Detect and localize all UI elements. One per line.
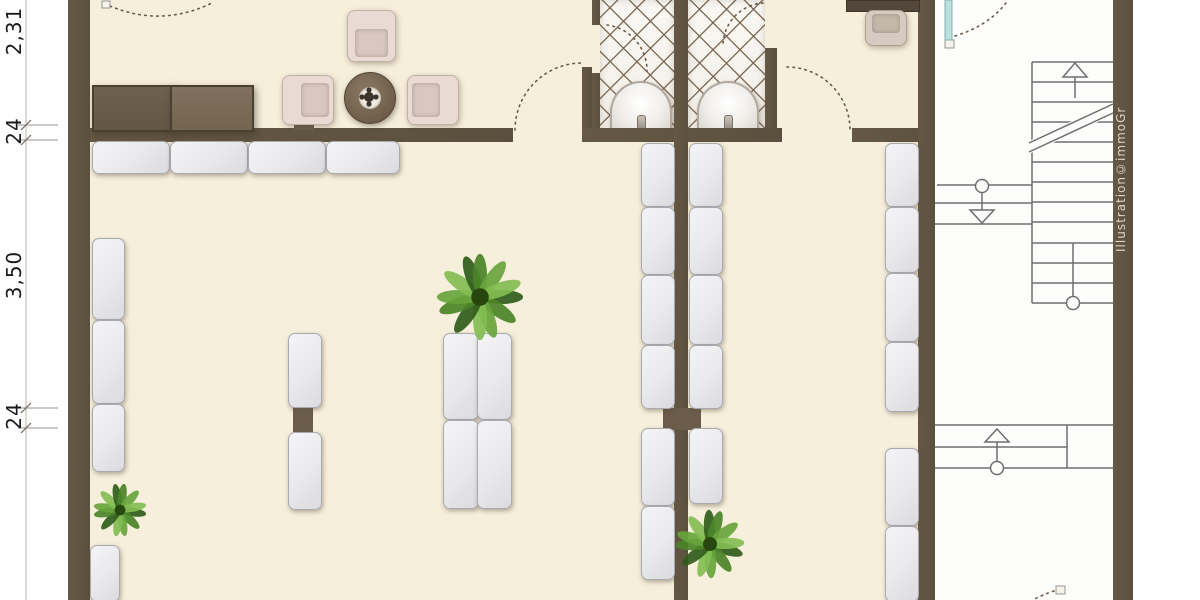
- sideboard-cabinet-1: [170, 85, 254, 132]
- bench-cushion-21: [689, 207, 723, 275]
- bench-cushion-6: [92, 404, 125, 472]
- bench-cushion-2: [248, 141, 326, 174]
- bench-cushion-17: [641, 345, 675, 409]
- bench-cushion-11: [477, 333, 512, 420]
- dimension-label-4: 24: [2, 381, 26, 451]
- floor-plan: 2,31 24 3,50 24 Illustration©immoGr: [0, 0, 1200, 600]
- bench-cushion-4: [92, 238, 125, 320]
- bench-cushion-3: [326, 141, 400, 174]
- bench-cushion-18: [641, 428, 675, 506]
- dimension-label-3: 3,50: [2, 240, 26, 310]
- armchair-2: [407, 75, 459, 125]
- bench-cushion-28: [885, 342, 919, 412]
- bench-cushion-14: [641, 143, 675, 207]
- wall-bath-right: [765, 48, 777, 128]
- wall-bath-left-upper: [592, 0, 600, 25]
- bench-cushion-19: [641, 506, 675, 580]
- sink-0: [610, 81, 672, 135]
- bench-cushion-25: [885, 143, 919, 207]
- armchair-1: [282, 75, 334, 125]
- bench-cushion-20: [689, 143, 723, 207]
- bench-cushion-1: [170, 141, 248, 174]
- bench-cushion-10: [443, 333, 479, 420]
- bench-cushion-12: [443, 420, 479, 509]
- bench-cushion-15: [641, 207, 675, 275]
- illustration-credit: Illustration©immoGr: [1114, 0, 1128, 252]
- bench-cushion-9: [288, 432, 322, 510]
- armchair-seat: [355, 29, 389, 57]
- bench-cushion-0: [92, 141, 170, 174]
- bench-cushion-13: [477, 420, 512, 509]
- wall-exterior-left: [68, 0, 90, 600]
- bench-cushion-30: [885, 526, 919, 600]
- bench-cushion-23: [689, 345, 723, 409]
- coffee-table: [344, 72, 396, 124]
- bench-cushion-22: [689, 275, 723, 345]
- armchair-3: [865, 10, 907, 46]
- armchair-seat: [412, 83, 440, 118]
- bench-cushion-16: [641, 275, 675, 345]
- bench-cushion-8: [288, 333, 322, 408]
- bench-cushion-5: [92, 320, 125, 404]
- bench-cushion-29: [885, 448, 919, 526]
- bench-cushion-26: [885, 207, 919, 273]
- bench-connector-2: [663, 408, 701, 430]
- dimension-label-2: 24: [2, 96, 26, 166]
- bench-cushion-7: [90, 545, 120, 600]
- bench-connector-1: [293, 406, 313, 432]
- armchair-seat: [301, 83, 329, 118]
- armchair-0: [347, 10, 396, 62]
- wall-center-spine: [674, 0, 688, 600]
- floor-stair-hall: [935, 0, 1113, 600]
- wall-stairhall-left: [918, 0, 935, 600]
- bench-cushion-27: [885, 273, 919, 342]
- bench-cushion-24: [689, 428, 723, 504]
- wall-bath-left-lower: [592, 73, 600, 128]
- sideboard-cabinet-0: [92, 85, 174, 132]
- dimension-label-1: 2,31: [2, 0, 26, 66]
- sink-1: [697, 81, 759, 135]
- armchair-seat: [872, 14, 901, 33]
